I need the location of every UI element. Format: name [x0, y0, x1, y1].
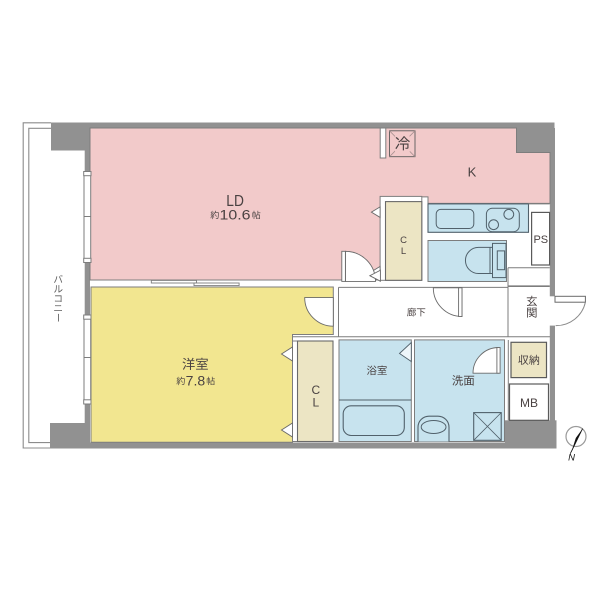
svg-text:L: L [312, 396, 319, 410]
svg-text:K: K [468, 165, 477, 180]
svg-text:7.8: 7.8 [186, 373, 206, 389]
svg-text:PS: PS [533, 234, 548, 246]
svg-text:10.6: 10.6 [220, 207, 251, 223]
svg-text:L: L [401, 246, 406, 257]
svg-text:MB: MB [520, 396, 538, 410]
svg-text:N: N [568, 453, 575, 464]
svg-text:C: C [400, 235, 407, 246]
